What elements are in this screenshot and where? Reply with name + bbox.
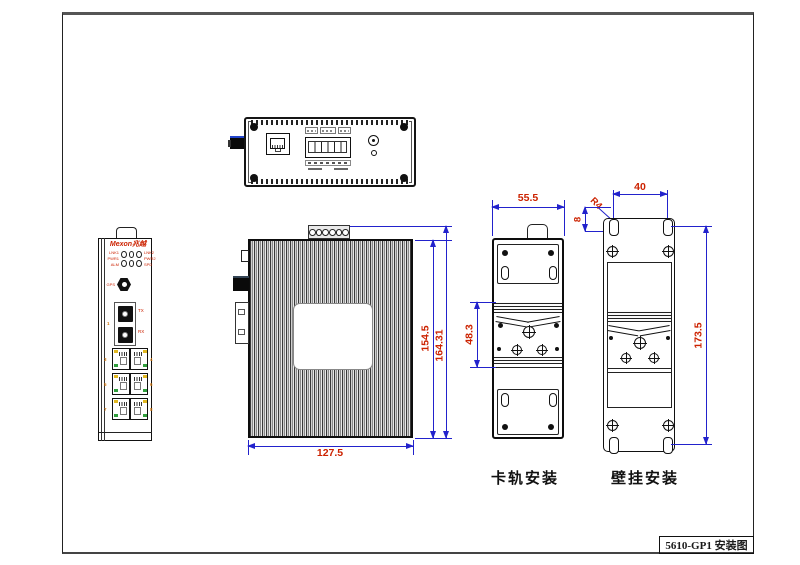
dim-hole-offset: 8 <box>573 210 584 230</box>
fiber-port-block <box>114 302 136 346</box>
rj45-pins <box>134 377 142 381</box>
panel-screw-icon <box>548 250 554 256</box>
led-icon <box>136 260 142 267</box>
led-row <box>121 251 142 258</box>
port-number: 7 <box>104 407 107 412</box>
clip-lower-hatch <box>494 357 562 364</box>
slot-hole <box>501 393 509 407</box>
dim-clip-height: 48.3 <box>465 315 476 355</box>
mount-hole <box>663 219 673 236</box>
panel-screw-icon <box>548 424 554 430</box>
led-icon <box>121 260 127 267</box>
port-led-yellow <box>143 400 147 403</box>
port-led-green <box>143 389 147 392</box>
plate-screw-icon <box>663 246 674 257</box>
fiber-connector-step <box>228 140 231 147</box>
corner-screw-icon <box>400 123 408 131</box>
port-number: 5 <box>104 382 107 387</box>
port-led-yellow <box>143 375 147 378</box>
rj45-port <box>112 398 130 420</box>
clip-screw-icon <box>497 347 501 351</box>
side-step <box>241 250 249 262</box>
top-view <box>228 112 428 202</box>
clip-screw-icon <box>512 345 522 355</box>
fiber-port-number: 1 <box>107 321 110 326</box>
terminal-screw-icon <box>329 229 336 236</box>
rj45-pins <box>134 352 142 356</box>
installation-drawing: Mexon兆越 LNK1 PWR1 ALM LNK2 PWR2 SPD GPS <box>0 0 800 565</box>
console-port <box>266 133 290 155</box>
fiber-tx-label: TX <box>138 308 144 314</box>
clip-divider-line <box>607 372 672 373</box>
rj45-port <box>130 348 148 370</box>
din-rail-view: 55.5 48.3 卡轨安装 <box>460 190 580 500</box>
terminal-print-mark <box>308 168 322 170</box>
led-icon <box>129 260 135 267</box>
port-led-yellow <box>114 350 118 353</box>
console-port-latch <box>275 149 281 152</box>
ground-screw-dot <box>372 139 375 142</box>
port-led-green <box>143 364 147 367</box>
terminal-label-cell <box>305 127 318 134</box>
mount-hole <box>609 437 619 454</box>
slot-hole <box>549 266 557 280</box>
led-label: ALM <box>105 262 119 268</box>
dimension-line-height <box>706 226 707 444</box>
terminal-screw-strip <box>305 160 351 166</box>
dim-height: 173.5 <box>694 311 705 361</box>
clip-center-screw-icon <box>523 326 535 338</box>
terminal-screw-icon <box>322 229 329 236</box>
plate-screw-icon <box>663 420 674 431</box>
slot-hole <box>549 393 557 407</box>
clip-screw-icon <box>537 345 547 355</box>
clip-spring-hatch <box>608 311 671 322</box>
terminal-screw-icon <box>309 229 316 236</box>
led-icon <box>136 251 142 258</box>
clip-divider-line <box>607 368 672 369</box>
wall-mount-view: 40 R4 8 173.5 壁挂安装 <box>575 182 720 502</box>
console-port-pins <box>272 145 283 148</box>
dimension-line-total-height <box>446 226 447 438</box>
port-led-green <box>143 414 147 417</box>
clip-screw-icon <box>554 323 559 328</box>
side-port-detail <box>238 309 245 315</box>
rj45-port <box>112 348 130 370</box>
title-block: 5610-GP1 安装图 <box>659 536 754 554</box>
mount-hole <box>609 219 619 236</box>
panel-screw-icon <box>502 424 508 430</box>
rj45-pins <box>119 352 127 356</box>
corner-screw-icon <box>250 174 258 182</box>
clip-center-screw-icon <box>634 337 646 349</box>
corner-screw-icon <box>250 123 258 131</box>
terminal-screw-icon <box>336 229 343 236</box>
led-icon <box>121 251 127 258</box>
plate-screw-icon <box>607 246 618 257</box>
side-port-housing <box>235 302 249 344</box>
port-number: 8 <box>150 407 153 412</box>
ground-hole-icon <box>371 150 377 156</box>
port-number: 4 <box>150 357 153 362</box>
clip-screw-icon <box>621 353 631 363</box>
led-label: SPD <box>144 262 158 268</box>
extension-line <box>585 207 611 208</box>
clip-spring-hatch <box>494 302 562 313</box>
side-terminal-block <box>308 225 350 239</box>
dimension-line-holes <box>613 194 667 195</box>
front-bottom-line <box>99 432 152 433</box>
dimension-line-offset <box>585 207 586 231</box>
rj45-slot <box>120 407 127 415</box>
terminal-print-mark <box>334 168 348 170</box>
clip-screw-icon <box>555 347 559 351</box>
led-grid <box>121 251 142 265</box>
terminal-label-cell <box>320 127 336 134</box>
fiber-connector-body <box>230 138 244 149</box>
fiber-port-tx <box>118 306 133 322</box>
antenna-label: GPS <box>102 282 115 288</box>
terminal-label-strip <box>305 127 351 134</box>
dim-width: 55.5 <box>498 193 558 204</box>
clip-screw-icon <box>649 353 659 363</box>
fiber-ferrule <box>122 311 128 317</box>
port-led-green <box>114 414 118 417</box>
fiber-rx-label: RX <box>138 329 144 335</box>
extension-line <box>350 226 452 227</box>
port-led-green <box>114 364 118 367</box>
title-block-text: 5610-GP1 安装图 <box>665 537 747 553</box>
clip-screw-icon <box>666 336 670 340</box>
brand-logo: Mexon兆越 <box>106 241 150 249</box>
rj45-slot <box>134 357 141 365</box>
rj45-port <box>130 373 148 395</box>
nameplate <box>293 303 373 370</box>
dim-body-height: 154.5 <box>421 317 432 361</box>
front-view: Mexon兆越 LNK1 PWR1 ALM LNK2 PWR2 SPD GPS <box>92 222 162 452</box>
port-led-yellow <box>114 400 118 403</box>
led-icon <box>129 251 135 258</box>
corner-screw-icon <box>400 174 408 182</box>
port-number: 6 <box>150 382 153 387</box>
side-view: 127.5 154.5 164.31 <box>240 218 470 468</box>
port-number: 3 <box>104 357 107 362</box>
bottom-fins-strip <box>251 179 409 184</box>
led-row <box>121 260 142 267</box>
antenna-center <box>122 282 127 287</box>
rj45-port <box>112 373 130 395</box>
power-terminal-block <box>305 137 351 158</box>
side-fiber-connector <box>233 276 249 291</box>
dim-hole-spacing: 40 <box>624 182 656 193</box>
rj45-slot <box>120 382 127 390</box>
plate-screw-icon <box>607 420 618 431</box>
fiber-port-rx <box>118 327 133 343</box>
rj45-pins <box>119 377 127 381</box>
dim-width: 127.5 <box>292 448 368 459</box>
clip-screw-icon <box>609 336 613 340</box>
terminal-label-cell <box>338 127 351 134</box>
terminal-screw-icon <box>342 229 349 236</box>
din-top-bump <box>527 224 548 238</box>
clip-divider-line <box>494 367 562 368</box>
terminal-slots <box>308 141 347 153</box>
dimension-line-clip <box>477 302 478 367</box>
side-port-detail <box>238 329 245 335</box>
port-led-yellow <box>143 350 147 353</box>
port-led-yellow <box>114 375 118 378</box>
slot-hole <box>501 266 509 280</box>
fiber-ferrule <box>122 332 128 338</box>
rj45-pins <box>134 402 142 406</box>
panel-screw-icon <box>502 250 508 256</box>
wall-mount-caption: 壁挂安装 <box>607 467 683 488</box>
rj45-port <box>130 398 148 420</box>
din-rail-caption: 卡轨安装 <box>487 467 563 488</box>
terminal-screw-icon <box>316 229 323 236</box>
rj45-slot <box>134 407 141 415</box>
mount-hole <box>663 437 673 454</box>
dimension-line-width <box>492 207 564 208</box>
dim-total-height: 164.31 <box>435 321 446 371</box>
ground-screw-icon <box>368 135 379 146</box>
rj45-slot <box>134 382 141 390</box>
top-fins-strip <box>251 120 409 125</box>
rj45-slot <box>120 357 127 365</box>
clip-screw-icon <box>498 323 503 328</box>
port-led-green <box>114 389 118 392</box>
rj45-pins <box>119 402 127 406</box>
